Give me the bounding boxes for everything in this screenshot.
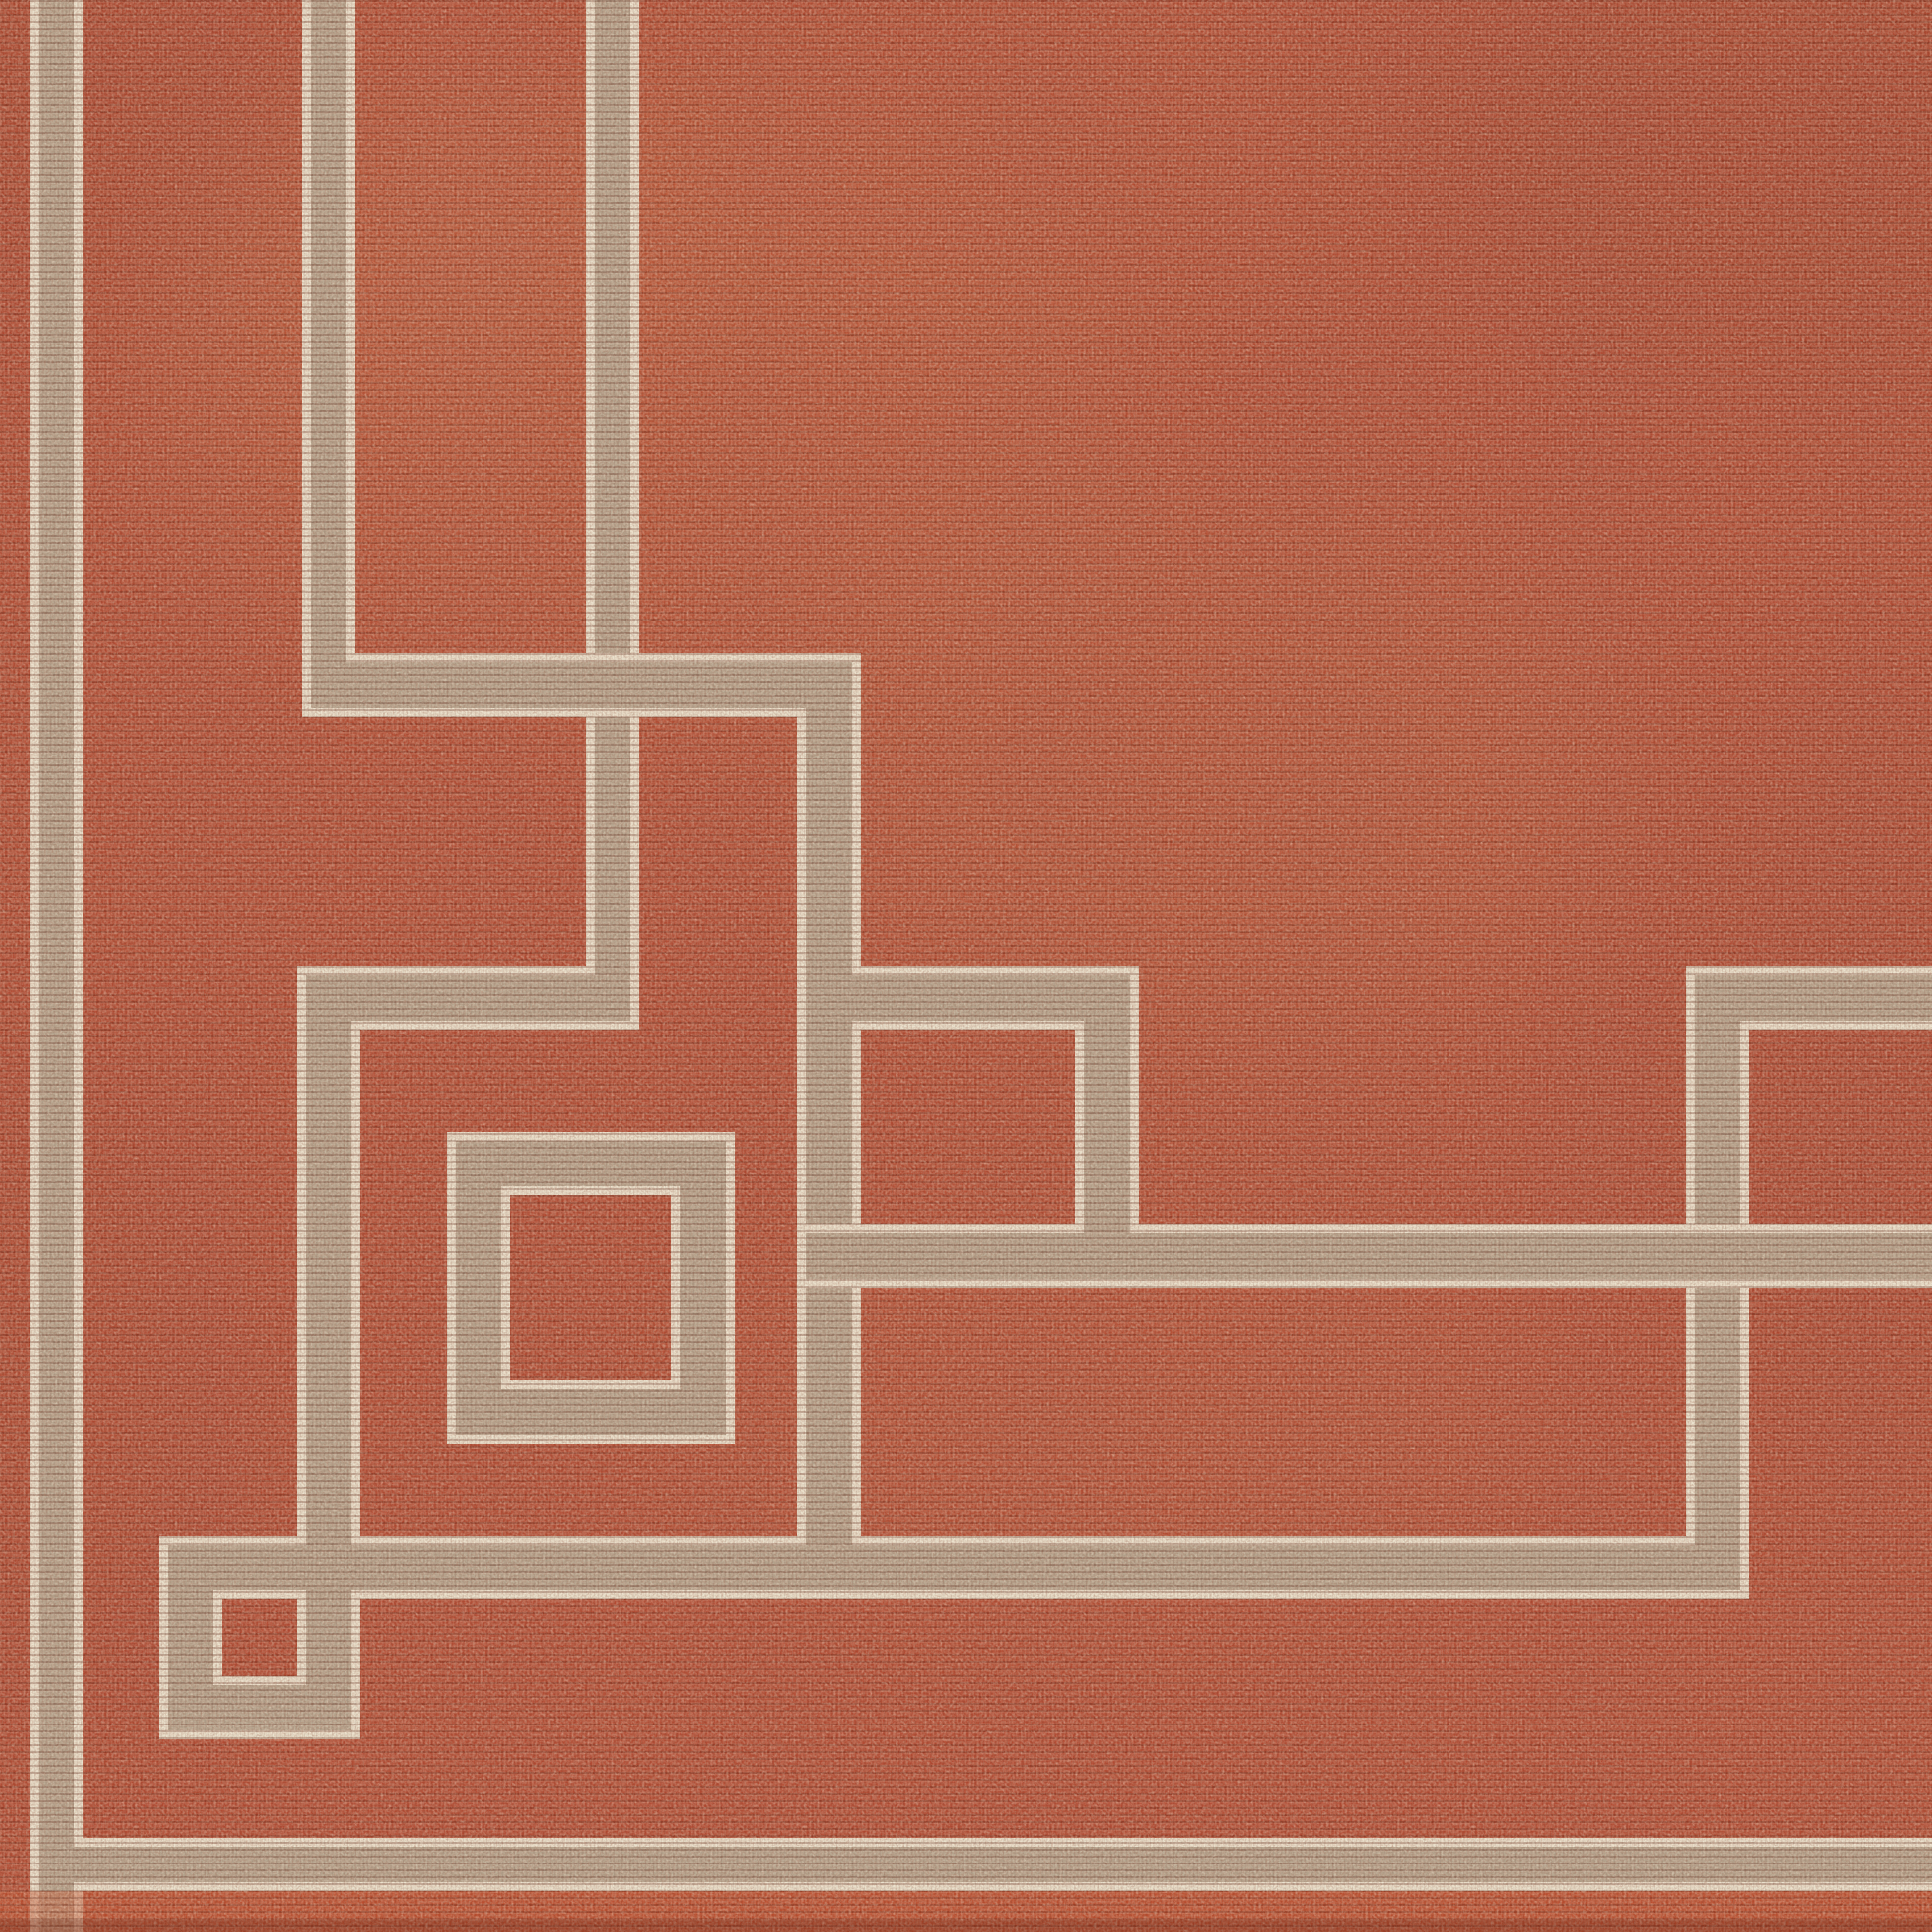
bottom-edge-shade [0,1920,1932,1932]
rug-pattern-svg [0,0,1932,1932]
weave-dark-fleck-texture [0,0,1932,1932]
rug-product-photo [0,0,1932,1932]
